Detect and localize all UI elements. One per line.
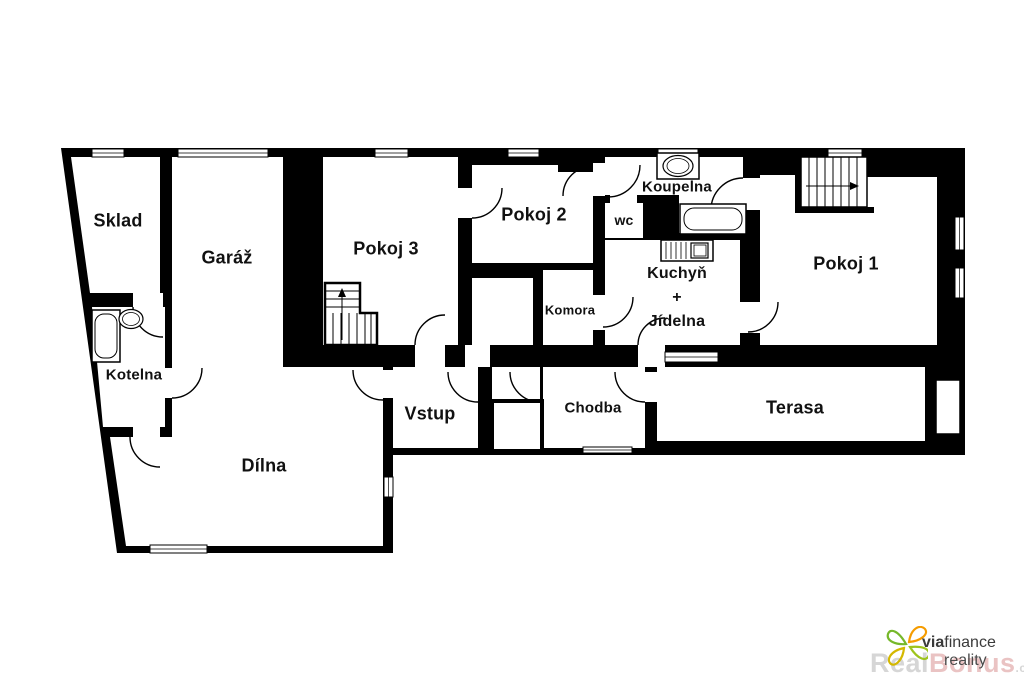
room-label-sklad: Sklad [93, 211, 142, 232]
kuchyn-line3: Jídelna [647, 310, 707, 334]
room-label-pokoj1: Pokoj 1 [813, 254, 878, 275]
bathtub-kotelna-icon [92, 310, 120, 362]
kuchyn-line1: Kuchyň [647, 262, 707, 286]
washbasin-koupelna-icon [657, 153, 699, 179]
room-label-kuchyn-jidelna: Kuchyň + Jídelna [647, 262, 707, 334]
room-label-komora: Komora [545, 303, 595, 318]
brand-reality: reality [944, 652, 987, 670]
brand-via: via [922, 634, 944, 651]
brand-name: viafinance [922, 634, 996, 652]
terrace-notch [936, 380, 960, 434]
washbasin-kotelna-icon [119, 310, 143, 329]
brand-finance: finance [944, 634, 996, 651]
room-label-terasa: Terasa [766, 398, 824, 419]
corridor [472, 278, 533, 345]
floorplan-page: Sklad Garáž Pokoj 3 Pokoj 2 Koupelna wc … [0, 0, 1024, 683]
bathtub-koupelna-icon [680, 204, 746, 234]
passage [465, 345, 490, 367]
room-label-pokoj2: Pokoj 2 [501, 205, 566, 226]
room-dilna [283, 367, 383, 546]
room-garaz [172, 157, 283, 546]
room-label-kotelna: Kotelna [106, 367, 162, 384]
room-label-vstup: Vstup [404, 404, 455, 425]
floorplan-drawing [0, 0, 1024, 683]
stairs-pokoj1 [801, 157, 867, 207]
room-label-chodba: Chodba [564, 400, 621, 417]
kitchen-sink-icon [661, 240, 713, 261]
room-label-wc: wc [614, 212, 633, 228]
viafinance-logo: RealBonus.cz viafinance reality [886, 626, 1016, 678]
room-label-garaz: Garáž [201, 248, 252, 269]
watermark-cz: .cz [1016, 661, 1024, 675]
vestibule [492, 367, 540, 399]
room-label-dilna: Dílna [241, 456, 286, 477]
alcove-interior [494, 403, 540, 449]
room-label-koupelna: Koupelna [642, 179, 712, 196]
room-label-pokoj3: Pokoj 3 [353, 239, 418, 260]
kuchyn-line2: + [647, 286, 707, 310]
